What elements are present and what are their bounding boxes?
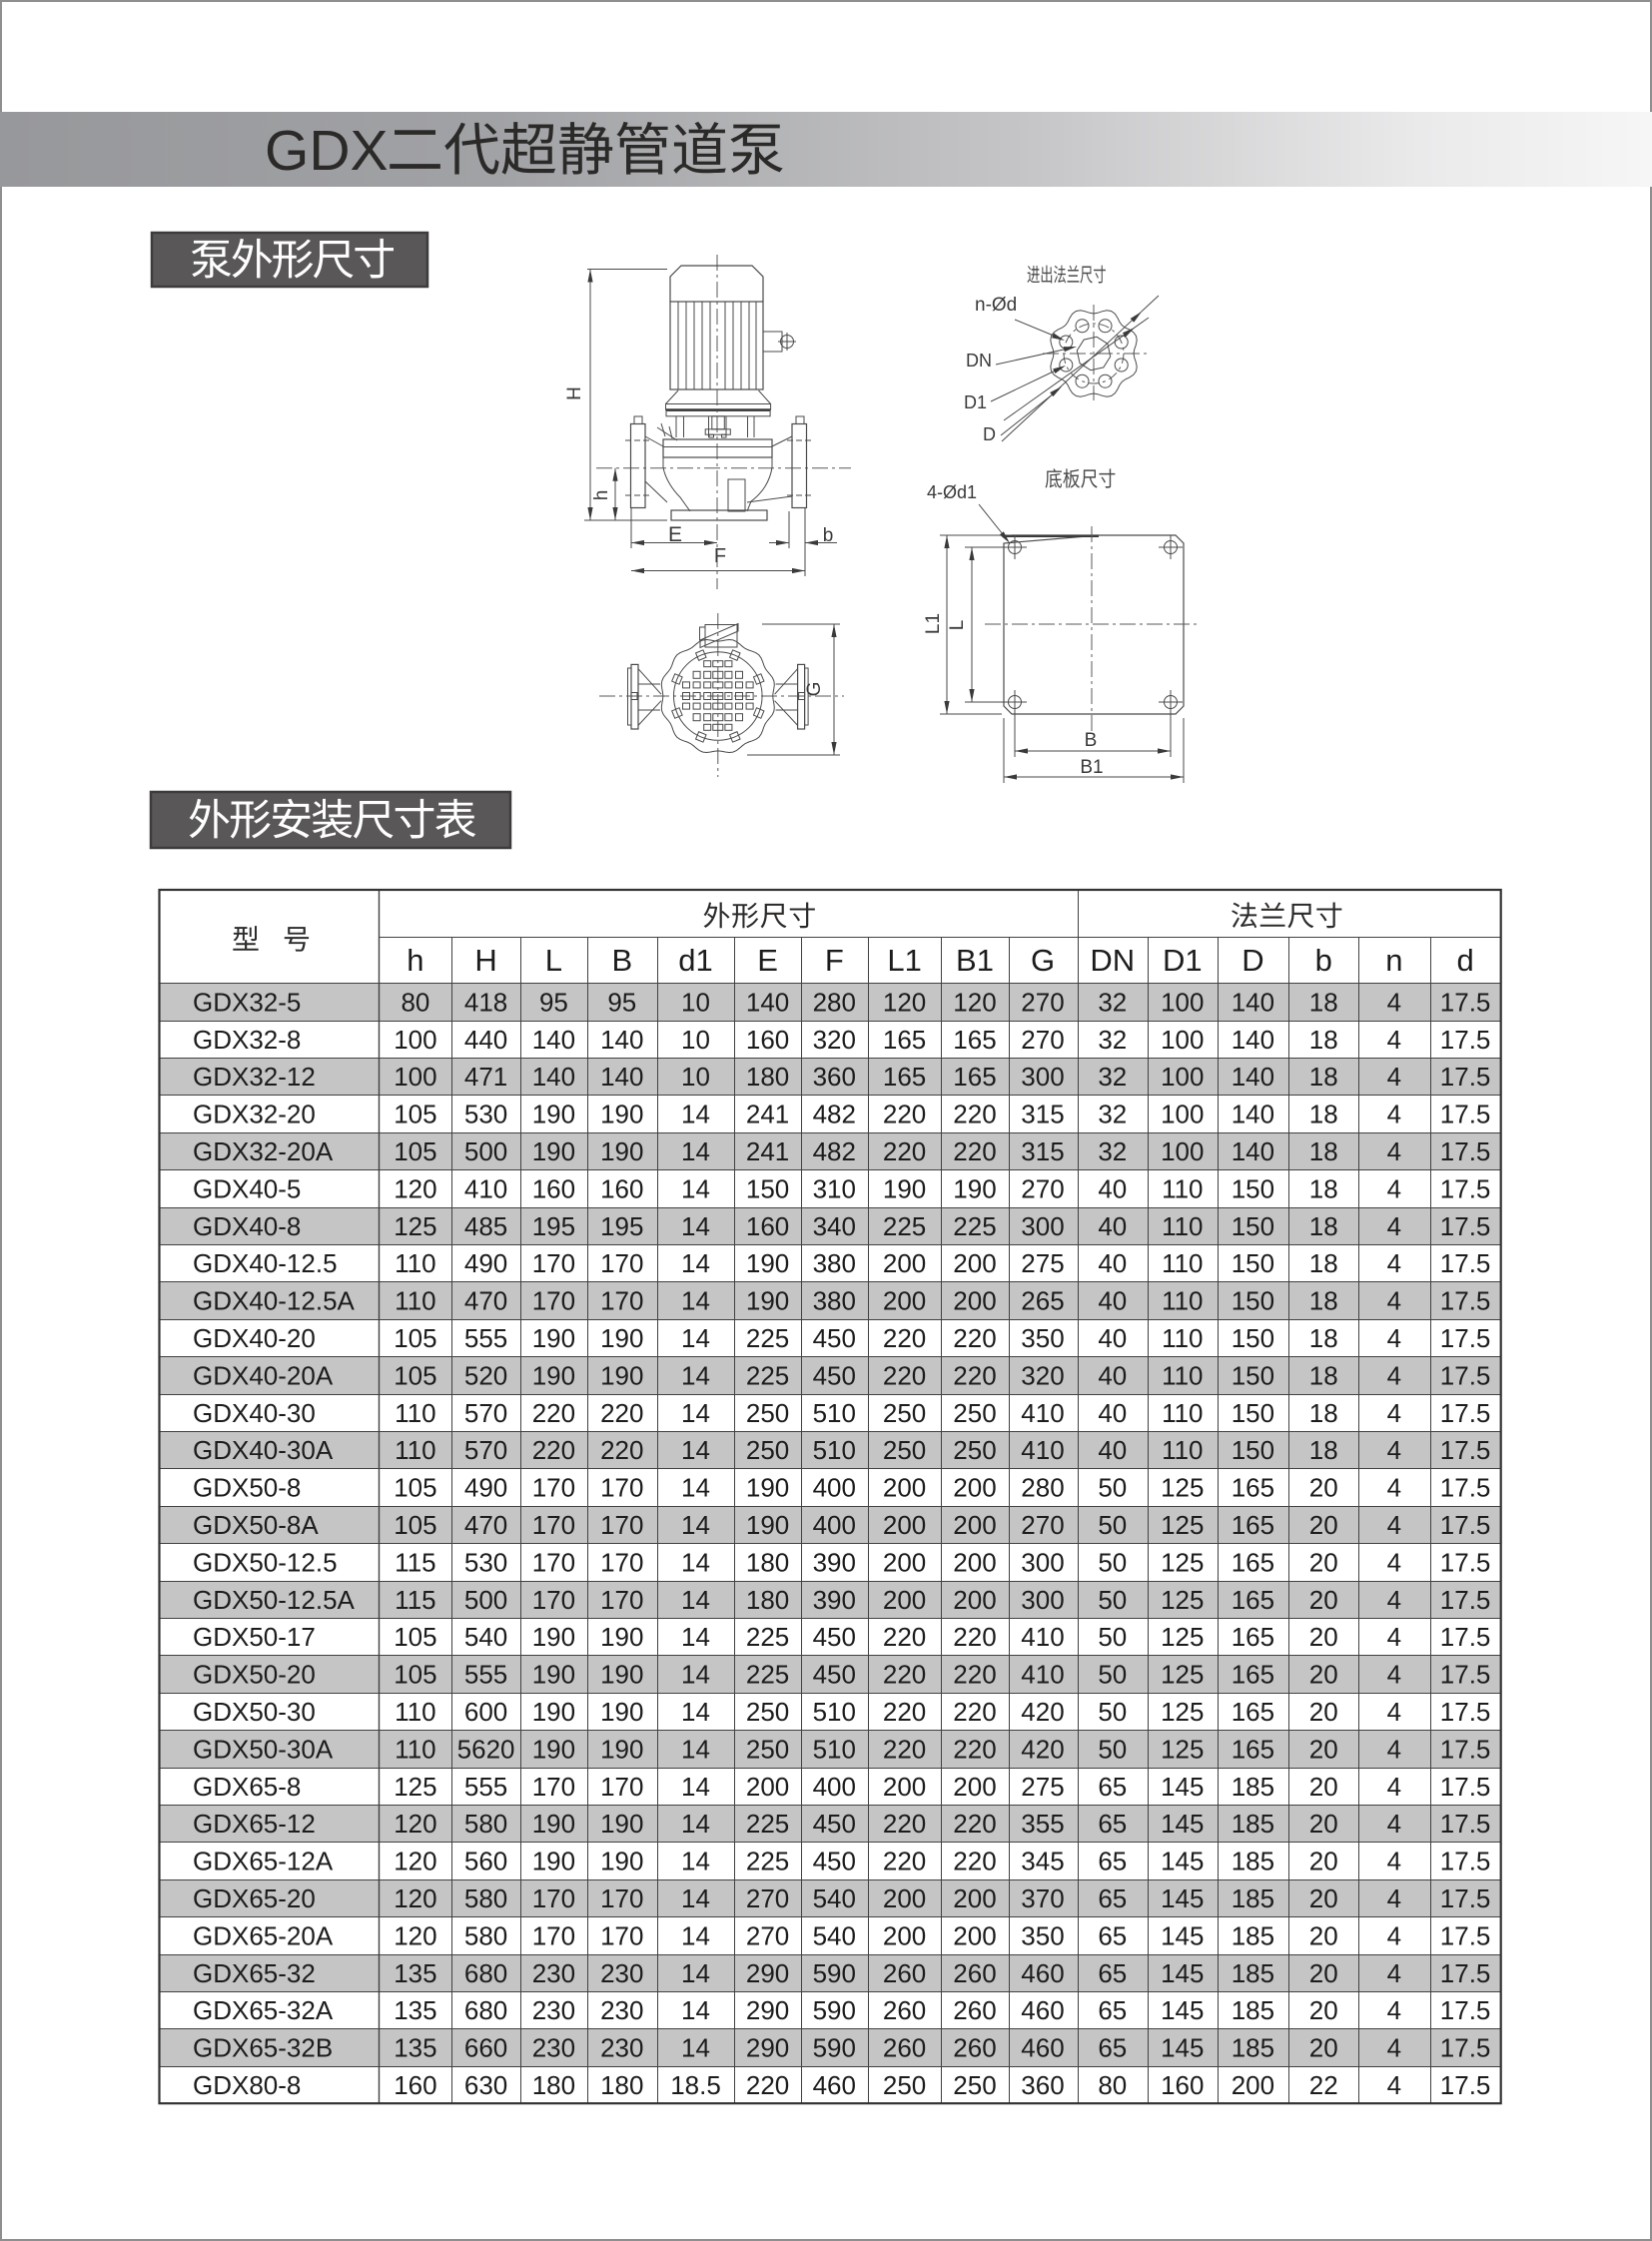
svg-text:418: 418 xyxy=(464,987,507,1017)
svg-text:150: 150 xyxy=(1232,1323,1274,1353)
svg-text:GDX32-5: GDX32-5 xyxy=(193,987,301,1017)
svg-text:250: 250 xyxy=(953,2070,996,2100)
svg-text:195: 195 xyxy=(532,1211,575,1241)
svg-text:110: 110 xyxy=(1162,1173,1203,1203)
svg-text:4: 4 xyxy=(1387,1136,1401,1166)
svg-text:140: 140 xyxy=(532,1025,575,1055)
svg-text:65: 65 xyxy=(1098,1995,1127,2025)
svg-text:17.5: 17.5 xyxy=(1440,1697,1491,1727)
svg-text:18: 18 xyxy=(1309,1360,1338,1390)
svg-text:GDX65-12: GDX65-12 xyxy=(193,1809,316,1839)
svg-text:400: 400 xyxy=(813,1510,856,1540)
svg-text:180: 180 xyxy=(600,2070,643,2100)
svg-text:200: 200 xyxy=(883,1883,926,1913)
svg-text:65: 65 xyxy=(1098,2032,1127,2062)
svg-text:220: 220 xyxy=(953,1136,996,1166)
svg-text:165: 165 xyxy=(1232,1622,1274,1652)
svg-text:190: 190 xyxy=(532,1809,575,1839)
svg-text:290: 290 xyxy=(746,2032,789,2062)
svg-text:B: B xyxy=(1085,730,1098,751)
svg-text:40: 40 xyxy=(1098,1211,1127,1241)
svg-text:150: 150 xyxy=(1232,1173,1274,1203)
svg-text:150: 150 xyxy=(1232,1285,1274,1315)
svg-text:230: 230 xyxy=(600,2032,643,2062)
svg-text:65: 65 xyxy=(1098,1920,1127,1950)
svg-text:400: 400 xyxy=(813,1772,856,1802)
svg-text:4: 4 xyxy=(1387,1173,1401,1203)
svg-text:145: 145 xyxy=(1161,1772,1204,1802)
svg-text:680: 680 xyxy=(464,1958,507,1988)
svg-text:GDX50-8A: GDX50-8A xyxy=(193,1510,319,1540)
svg-text:105: 105 xyxy=(394,1099,436,1128)
svg-text:140: 140 xyxy=(1232,1025,1274,1055)
svg-text:50: 50 xyxy=(1098,1547,1127,1577)
svg-text:225: 225 xyxy=(746,1360,789,1390)
svg-text:200: 200 xyxy=(883,1285,926,1315)
svg-text:540: 540 xyxy=(813,1883,856,1913)
svg-text:14: 14 xyxy=(681,1510,710,1540)
svg-text:4: 4 xyxy=(1387,1585,1401,1615)
svg-text:b: b xyxy=(823,525,834,546)
svg-text:17.5: 17.5 xyxy=(1440,1510,1491,1540)
svg-text:270: 270 xyxy=(746,1883,789,1913)
svg-text:185: 185 xyxy=(1232,1995,1274,2025)
svg-text:G: G xyxy=(804,682,825,697)
svg-text:17.5: 17.5 xyxy=(1440,1323,1491,1353)
svg-text:360: 360 xyxy=(813,1062,856,1092)
svg-text:165: 165 xyxy=(1232,1547,1274,1577)
svg-text:n: n xyxy=(1385,943,1402,978)
svg-text:225: 225 xyxy=(746,1622,789,1652)
svg-text:10: 10 xyxy=(681,987,710,1017)
svg-text:200: 200 xyxy=(953,1285,996,1315)
svg-text:120: 120 xyxy=(394,1920,436,1950)
svg-text:600: 600 xyxy=(464,1697,507,1727)
svg-text:190: 190 xyxy=(600,1136,643,1166)
svg-text:450: 450 xyxy=(813,1809,856,1839)
svg-text:14: 14 xyxy=(681,1211,710,1241)
svg-text:17.5: 17.5 xyxy=(1440,1995,1491,2025)
svg-text:17.5: 17.5 xyxy=(1440,1846,1491,1875)
svg-text:230: 230 xyxy=(532,1995,575,2025)
svg-text:18: 18 xyxy=(1309,1025,1338,1055)
svg-text:160: 160 xyxy=(394,2070,436,2100)
svg-text:110: 110 xyxy=(1162,1360,1203,1390)
svg-text:280: 280 xyxy=(1021,1472,1064,1502)
svg-text:120: 120 xyxy=(394,1846,436,1875)
svg-text:4: 4 xyxy=(1387,1772,1401,1802)
svg-text:DN: DN xyxy=(966,351,992,371)
svg-text:250: 250 xyxy=(883,1398,926,1428)
svg-text:200: 200 xyxy=(953,1547,996,1577)
svg-text:20: 20 xyxy=(1309,1995,1338,2025)
svg-text:GDX80-8: GDX80-8 xyxy=(193,2070,301,2100)
svg-text:150: 150 xyxy=(1232,1398,1274,1428)
svg-text:h: h xyxy=(591,490,612,501)
svg-text:50: 50 xyxy=(1098,1472,1127,1502)
svg-text:L1: L1 xyxy=(887,943,921,978)
svg-text:125: 125 xyxy=(394,1772,436,1802)
svg-text:110: 110 xyxy=(1162,1248,1203,1278)
svg-text:GDX65-8: GDX65-8 xyxy=(193,1772,301,1802)
svg-text:100: 100 xyxy=(1161,1136,1204,1166)
svg-text:135: 135 xyxy=(394,1995,436,2025)
svg-text:5620: 5620 xyxy=(457,1734,515,1764)
svg-text:17.5: 17.5 xyxy=(1440,1173,1491,1203)
svg-text:540: 540 xyxy=(813,1920,856,1950)
svg-text:185: 185 xyxy=(1232,1772,1274,1802)
svg-text:17.5: 17.5 xyxy=(1440,1883,1491,1913)
svg-text:18: 18 xyxy=(1309,1136,1338,1166)
svg-text:220: 220 xyxy=(883,1846,926,1875)
svg-text:20: 20 xyxy=(1309,1920,1338,1950)
svg-text:160: 160 xyxy=(532,1173,575,1203)
svg-text:110: 110 xyxy=(395,1435,435,1465)
svg-text:40: 40 xyxy=(1098,1323,1127,1353)
svg-text:GDX50-8: GDX50-8 xyxy=(193,1472,301,1502)
svg-text:4: 4 xyxy=(1387,2070,1401,2100)
svg-text:GDX40-8: GDX40-8 xyxy=(193,1211,301,1241)
svg-text:18: 18 xyxy=(1309,1211,1338,1241)
svg-text:4: 4 xyxy=(1387,1099,1401,1128)
svg-text:4: 4 xyxy=(1387,1248,1401,1278)
svg-text:GDX65-32B: GDX65-32B xyxy=(193,2032,333,2062)
svg-text:220: 220 xyxy=(883,1809,926,1839)
svg-text:GDX50-20: GDX50-20 xyxy=(193,1659,316,1689)
svg-text:17.5: 17.5 xyxy=(1440,1360,1491,1390)
svg-text:17.5: 17.5 xyxy=(1440,1772,1491,1802)
svg-text:170: 170 xyxy=(532,1510,575,1540)
svg-text:17.5: 17.5 xyxy=(1440,987,1491,1017)
svg-text:170: 170 xyxy=(600,1510,643,1540)
svg-text:40: 40 xyxy=(1098,1398,1127,1428)
svg-text:110: 110 xyxy=(395,1285,435,1315)
svg-text:105: 105 xyxy=(394,1510,436,1540)
svg-text:20: 20 xyxy=(1309,1734,1338,1764)
svg-text:460: 460 xyxy=(1021,1995,1064,2025)
svg-text:120: 120 xyxy=(394,1809,436,1839)
svg-text:170: 170 xyxy=(600,1547,643,1577)
svg-text:80: 80 xyxy=(401,987,429,1017)
svg-text:220: 220 xyxy=(953,1622,996,1652)
svg-text:555: 555 xyxy=(464,1323,507,1353)
svg-text:190: 190 xyxy=(532,1659,575,1689)
svg-text:200: 200 xyxy=(953,1510,996,1540)
svg-text:14: 14 xyxy=(681,1248,710,1278)
svg-text:250: 250 xyxy=(883,2070,926,2100)
svg-text:170: 170 xyxy=(600,1285,643,1315)
svg-text:120: 120 xyxy=(883,987,926,1017)
svg-text:105: 105 xyxy=(394,1323,436,1353)
svg-text:20: 20 xyxy=(1309,1585,1338,1615)
svg-text:4: 4 xyxy=(1387,987,1401,1017)
svg-text:105: 105 xyxy=(394,1360,436,1390)
svg-text:20: 20 xyxy=(1309,1622,1338,1652)
svg-text:17.5: 17.5 xyxy=(1440,1734,1491,1764)
svg-text:65: 65 xyxy=(1098,1809,1127,1839)
svg-text:410: 410 xyxy=(1021,1659,1064,1689)
svg-text:270: 270 xyxy=(746,1920,789,1950)
svg-text:190: 190 xyxy=(532,1323,575,1353)
svg-text:GDX65-12A: GDX65-12A xyxy=(193,1846,334,1875)
svg-text:20: 20 xyxy=(1309,2032,1338,2062)
svg-text:400: 400 xyxy=(813,1472,856,1502)
svg-text:32: 32 xyxy=(1098,1099,1127,1128)
svg-text:190: 190 xyxy=(532,1846,575,1875)
svg-text:40: 40 xyxy=(1098,1360,1127,1390)
svg-text:345: 345 xyxy=(1021,1846,1064,1875)
svg-text:200: 200 xyxy=(953,1585,996,1615)
svg-text:120: 120 xyxy=(394,1883,436,1913)
svg-text:125: 125 xyxy=(1161,1510,1204,1540)
svg-text:530: 530 xyxy=(464,1099,507,1128)
svg-text:125: 125 xyxy=(1161,1697,1204,1727)
svg-text:185: 185 xyxy=(1232,1846,1274,1875)
svg-text:220: 220 xyxy=(883,1136,926,1166)
svg-text:20: 20 xyxy=(1309,1772,1338,1802)
svg-text:190: 190 xyxy=(532,1697,575,1727)
svg-text:450: 450 xyxy=(813,1622,856,1652)
svg-text:14: 14 xyxy=(681,1995,710,2025)
svg-text:420: 420 xyxy=(1021,1697,1064,1727)
svg-text:GDX32-8: GDX32-8 xyxy=(193,1025,301,1055)
svg-text:220: 220 xyxy=(883,1099,926,1128)
svg-text:220: 220 xyxy=(600,1398,643,1428)
svg-text:180: 180 xyxy=(746,1062,789,1092)
svg-text:4: 4 xyxy=(1387,1472,1401,1502)
svg-text:150: 150 xyxy=(1232,1360,1274,1390)
svg-text:170: 170 xyxy=(600,1772,643,1802)
svg-text:110: 110 xyxy=(395,1248,435,1278)
svg-text:225: 225 xyxy=(953,1211,996,1241)
svg-text:17.5: 17.5 xyxy=(1440,1398,1491,1428)
svg-text:225: 225 xyxy=(746,1846,789,1875)
svg-text:80: 80 xyxy=(1098,2070,1127,2100)
svg-text:170: 170 xyxy=(532,1285,575,1315)
svg-text:190: 190 xyxy=(746,1510,789,1540)
svg-text:190: 190 xyxy=(532,1622,575,1652)
svg-text:190: 190 xyxy=(600,1846,643,1875)
svg-text:170: 170 xyxy=(532,1472,575,1502)
svg-text:580: 580 xyxy=(464,1809,507,1839)
svg-text:190: 190 xyxy=(532,1099,575,1128)
svg-text:4: 4 xyxy=(1387,1285,1401,1315)
svg-text:B1: B1 xyxy=(956,943,994,978)
svg-text:GDX65-20A: GDX65-20A xyxy=(193,1920,334,1950)
svg-text:GDX65-20: GDX65-20 xyxy=(193,1883,316,1913)
svg-text:390: 390 xyxy=(813,1547,856,1577)
svg-text:200: 200 xyxy=(883,1510,926,1540)
svg-text:170: 170 xyxy=(532,1920,575,1950)
svg-text:110: 110 xyxy=(1162,1323,1203,1353)
svg-text:440: 440 xyxy=(464,1025,507,1055)
svg-text:32: 32 xyxy=(1098,1025,1127,1055)
svg-text:20: 20 xyxy=(1309,1510,1338,1540)
svg-text:200: 200 xyxy=(953,1772,996,1802)
svg-text:250: 250 xyxy=(883,1435,926,1465)
svg-text:GDX32-20A: GDX32-20A xyxy=(193,1136,334,1166)
svg-text:4: 4 xyxy=(1387,1883,1401,1913)
svg-text:230: 230 xyxy=(600,1958,643,1988)
svg-text:190: 190 xyxy=(746,1472,789,1502)
svg-text:190: 190 xyxy=(600,1622,643,1652)
svg-text:D: D xyxy=(1241,943,1263,978)
svg-text:520: 520 xyxy=(464,1360,507,1390)
svg-text:300: 300 xyxy=(1021,1211,1064,1241)
svg-text:GDX: GDX xyxy=(265,119,389,183)
svg-text:220: 220 xyxy=(532,1435,575,1465)
svg-text:225: 225 xyxy=(883,1211,926,1241)
svg-text:350: 350 xyxy=(1021,1323,1064,1353)
svg-text:65: 65 xyxy=(1098,1772,1127,1802)
svg-text:14: 14 xyxy=(681,1323,710,1353)
svg-text:145: 145 xyxy=(1161,1920,1204,1950)
svg-text:220: 220 xyxy=(953,1659,996,1689)
svg-text:105: 105 xyxy=(394,1622,436,1652)
svg-text:220: 220 xyxy=(883,1734,926,1764)
svg-text:110: 110 xyxy=(395,1734,435,1764)
svg-text:270: 270 xyxy=(1021,1025,1064,1055)
svg-text:275: 275 xyxy=(1021,1248,1064,1278)
svg-text:275: 275 xyxy=(1021,1772,1064,1802)
svg-text:18: 18 xyxy=(1309,1062,1338,1092)
svg-text:490: 490 xyxy=(464,1248,507,1278)
svg-text:14: 14 xyxy=(681,1547,710,1577)
svg-text:H: H xyxy=(564,386,585,400)
svg-text:140: 140 xyxy=(1232,1136,1274,1166)
svg-text:185: 185 xyxy=(1232,1920,1274,1950)
svg-text:150: 150 xyxy=(1232,1248,1274,1278)
svg-text:F: F xyxy=(714,545,726,567)
svg-text:190: 190 xyxy=(600,1360,643,1390)
svg-text:410: 410 xyxy=(1021,1398,1064,1428)
svg-text:65: 65 xyxy=(1098,1883,1127,1913)
svg-text:GDX40-12.5: GDX40-12.5 xyxy=(193,1248,338,1278)
svg-text:32: 32 xyxy=(1098,987,1127,1017)
svg-text:120: 120 xyxy=(394,1173,436,1203)
svg-text:200: 200 xyxy=(883,1547,926,1577)
svg-text:4: 4 xyxy=(1387,1809,1401,1839)
svg-text:120: 120 xyxy=(953,987,996,1017)
svg-text:265: 265 xyxy=(1021,1285,1064,1315)
svg-text:110: 110 xyxy=(1162,1435,1203,1465)
svg-text:410: 410 xyxy=(1021,1622,1064,1652)
svg-text:40: 40 xyxy=(1098,1173,1127,1203)
svg-text:170: 170 xyxy=(600,1883,643,1913)
svg-text:17.5: 17.5 xyxy=(1440,1622,1491,1652)
svg-text:4: 4 xyxy=(1387,2032,1401,2062)
svg-text:14: 14 xyxy=(681,1622,710,1652)
svg-text:250: 250 xyxy=(746,1734,789,1764)
svg-text:165: 165 xyxy=(1232,1734,1274,1764)
svg-text:E: E xyxy=(757,943,778,978)
svg-text:170: 170 xyxy=(532,1585,575,1615)
svg-text:530: 530 xyxy=(464,1547,507,1577)
svg-text:4: 4 xyxy=(1387,1622,1401,1652)
svg-text:195: 195 xyxy=(600,1211,643,1241)
svg-text:DN: DN xyxy=(1090,943,1135,978)
svg-text:110: 110 xyxy=(1162,1398,1203,1428)
svg-text:G: G xyxy=(1031,943,1055,978)
svg-text:32: 32 xyxy=(1098,1062,1127,1092)
svg-text:590: 590 xyxy=(813,1995,856,2025)
svg-text:50: 50 xyxy=(1098,1734,1127,1764)
svg-text:140: 140 xyxy=(1232,1099,1274,1128)
svg-text:20: 20 xyxy=(1309,1809,1338,1839)
svg-text:17.5: 17.5 xyxy=(1440,1472,1491,1502)
svg-text:105: 105 xyxy=(394,1136,436,1166)
svg-text:14: 14 xyxy=(681,1920,710,1950)
svg-text:340: 340 xyxy=(813,1211,856,1241)
svg-text:220: 220 xyxy=(953,1809,996,1839)
svg-text:190: 190 xyxy=(600,1697,643,1727)
svg-text:4: 4 xyxy=(1387,1360,1401,1390)
svg-text:17.5: 17.5 xyxy=(1440,1585,1491,1615)
svg-text:471: 471 xyxy=(464,1062,507,1092)
svg-text:380: 380 xyxy=(813,1248,856,1278)
svg-text:145: 145 xyxy=(1161,2032,1204,2062)
svg-text:680: 680 xyxy=(464,1995,507,2025)
svg-text:14: 14 xyxy=(681,1883,710,1913)
svg-text:145: 145 xyxy=(1161,1883,1204,1913)
svg-text:450: 450 xyxy=(813,1323,856,1353)
svg-text:100: 100 xyxy=(1161,1099,1204,1128)
svg-text:250: 250 xyxy=(746,1435,789,1465)
svg-text:140: 140 xyxy=(1232,987,1274,1017)
svg-text:230: 230 xyxy=(600,1995,643,2025)
svg-text:320: 320 xyxy=(1021,1360,1064,1390)
svg-text:4: 4 xyxy=(1387,1398,1401,1428)
svg-text:190: 190 xyxy=(746,1285,789,1315)
svg-text:GDX65-32A: GDX65-32A xyxy=(193,1995,334,2025)
svg-text:105: 105 xyxy=(394,1659,436,1689)
svg-text:290: 290 xyxy=(746,1958,789,1988)
svg-text:420: 420 xyxy=(1021,1734,1064,1764)
svg-text:320: 320 xyxy=(813,1025,856,1055)
svg-text:4: 4 xyxy=(1387,1846,1401,1875)
svg-text:260: 260 xyxy=(883,1995,926,2025)
svg-text:560: 560 xyxy=(464,1846,507,1875)
svg-text:17.5: 17.5 xyxy=(1440,1099,1491,1128)
svg-text:145: 145 xyxy=(1161,1846,1204,1875)
svg-text:270: 270 xyxy=(1021,1510,1064,1540)
svg-text:17.5: 17.5 xyxy=(1440,1211,1491,1241)
svg-text:4: 4 xyxy=(1387,1211,1401,1241)
svg-text:165: 165 xyxy=(1232,1659,1274,1689)
svg-text:500: 500 xyxy=(464,1136,507,1166)
svg-text:200: 200 xyxy=(883,1585,926,1615)
svg-text:14: 14 xyxy=(681,1136,710,1166)
svg-text:4: 4 xyxy=(1387,1734,1401,1764)
svg-text:555: 555 xyxy=(464,1659,507,1689)
svg-text:510: 510 xyxy=(813,1697,856,1727)
svg-text:95: 95 xyxy=(607,987,636,1017)
svg-text:110: 110 xyxy=(1162,1285,1203,1315)
svg-text:40: 40 xyxy=(1098,1435,1127,1465)
svg-text:17.5: 17.5 xyxy=(1440,1809,1491,1839)
svg-text:300: 300 xyxy=(1021,1062,1064,1092)
svg-text:220: 220 xyxy=(953,1323,996,1353)
svg-text:4: 4 xyxy=(1387,1062,1401,1092)
svg-text:50: 50 xyxy=(1098,1622,1127,1652)
svg-text:14: 14 xyxy=(681,1173,710,1203)
svg-text:165: 165 xyxy=(1232,1697,1274,1727)
svg-text:F: F xyxy=(825,943,844,978)
svg-text:GDX50-12.5: GDX50-12.5 xyxy=(193,1547,338,1577)
svg-text:150: 150 xyxy=(1232,1435,1274,1465)
svg-text:4: 4 xyxy=(1387,1547,1401,1577)
svg-text:22: 22 xyxy=(1309,2070,1338,2100)
